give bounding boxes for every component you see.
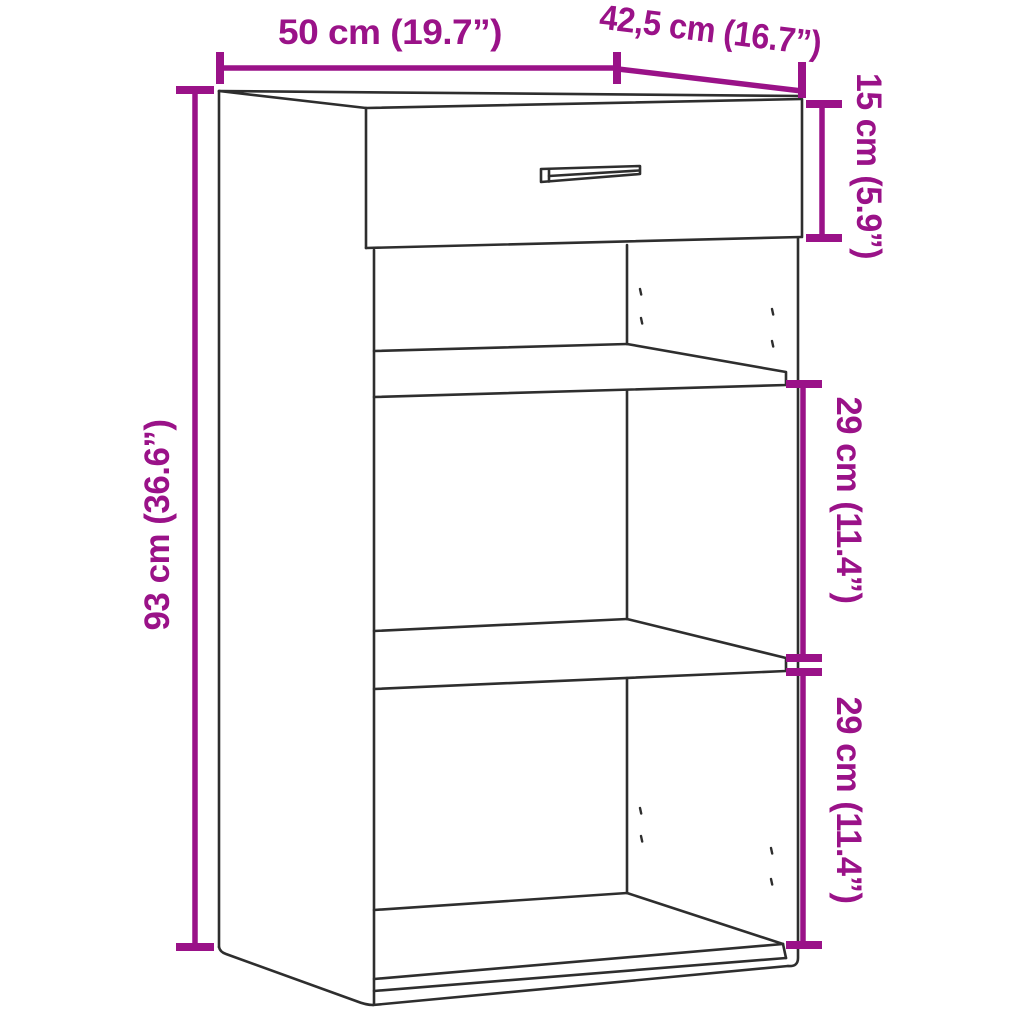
drawer-handle bbox=[541, 166, 640, 182]
pin-hole bbox=[771, 879, 772, 885]
dim-total-height-label: 93 cm (36.6”) bbox=[138, 420, 177, 631]
shelf-lower-back-edge bbox=[374, 619, 627, 631]
dim-drawer-height-label: 15 cm (5.9”) bbox=[849, 73, 888, 259]
top-left-edge bbox=[219, 91, 366, 108]
dimension-annotations: 50 cm (19.7”) 42,5 cm (16.7”) 15 cm (5.9… bbox=[138, 0, 888, 947]
dim-upper-compartment-label: 29 cm (11.4”) bbox=[829, 397, 868, 604]
shelf-upper bbox=[374, 344, 786, 397]
shelf-lower-front-edge bbox=[374, 619, 786, 689]
drawer-bottom-edge bbox=[366, 237, 801, 248]
pin-hole bbox=[640, 289, 641, 295]
pin-hole bbox=[771, 848, 772, 854]
shelf-upper-front-edge bbox=[374, 344, 786, 397]
pin-hole bbox=[772, 341, 773, 347]
dim-depth-label: 42,5 cm (16.7”) bbox=[597, 0, 823, 64]
shelf-upper-back-edge bbox=[374, 344, 627, 351]
dim-total-height: 93 cm (36.6”) bbox=[138, 90, 214, 947]
bottom-back-edge bbox=[374, 893, 627, 910]
shelf-lower bbox=[374, 619, 786, 689]
shelf-pin-holes bbox=[640, 289, 773, 885]
drawer-top-edge bbox=[366, 99, 802, 108]
front-right-edge bbox=[788, 238, 798, 966]
dim-width-label: 50 cm (19.7”) bbox=[278, 13, 502, 52]
bottom-right-diagonal bbox=[627, 893, 783, 944]
bottom-panel bbox=[374, 893, 786, 991]
dim-width: 50 cm (19.7”) bbox=[220, 13, 617, 84]
dim-drawer-height: 15 cm (5.9”) bbox=[806, 73, 888, 259]
diagram-canvas: 50 cm (19.7”) 42,5 cm (16.7”) 15 cm (5.9… bbox=[0, 0, 1024, 1024]
bottom-front-tip bbox=[783, 944, 786, 958]
cabinet-outline bbox=[219, 91, 802, 1005]
pin-hole bbox=[772, 309, 773, 315]
bottom-left-edge bbox=[219, 947, 373, 1005]
dim-depth-line bbox=[618, 69, 802, 91]
cabinet-line-art bbox=[219, 91, 802, 1005]
pin-hole bbox=[641, 318, 642, 324]
product-dimension-diagram: 50 cm (19.7”) 42,5 cm (16.7”) 15 cm (5.9… bbox=[0, 0, 1024, 1024]
pin-hole bbox=[641, 836, 642, 842]
dim-lower-compartment-label: 29 cm (11.4”) bbox=[829, 697, 868, 904]
dim-depth: 42,5 cm (16.7”) bbox=[597, 0, 823, 98]
pin-hole bbox=[640, 808, 641, 814]
drawer-front bbox=[366, 99, 802, 248]
top-back-edge bbox=[219, 91, 802, 96]
